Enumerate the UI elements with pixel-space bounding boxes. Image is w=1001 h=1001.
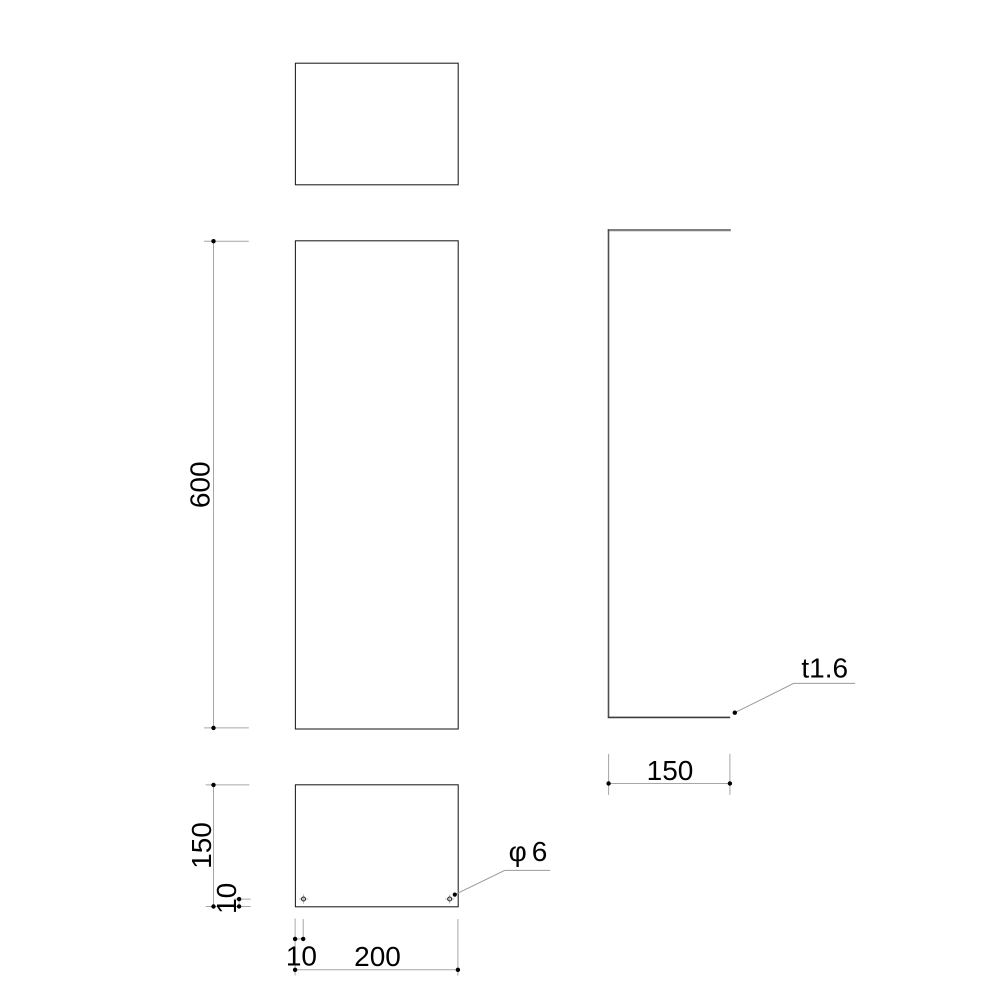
svg-text:150: 150 bbox=[186, 822, 217, 869]
svg-text:10: 10 bbox=[211, 883, 242, 914]
svg-text:200: 200 bbox=[354, 941, 401, 972]
svg-text:t1.6: t1.6 bbox=[801, 653, 848, 684]
svg-text:10: 10 bbox=[286, 941, 317, 972]
svg-text:φ6: φ6 bbox=[509, 836, 553, 867]
svg-text:600: 600 bbox=[185, 461, 216, 508]
svg-text:150: 150 bbox=[647, 755, 694, 786]
